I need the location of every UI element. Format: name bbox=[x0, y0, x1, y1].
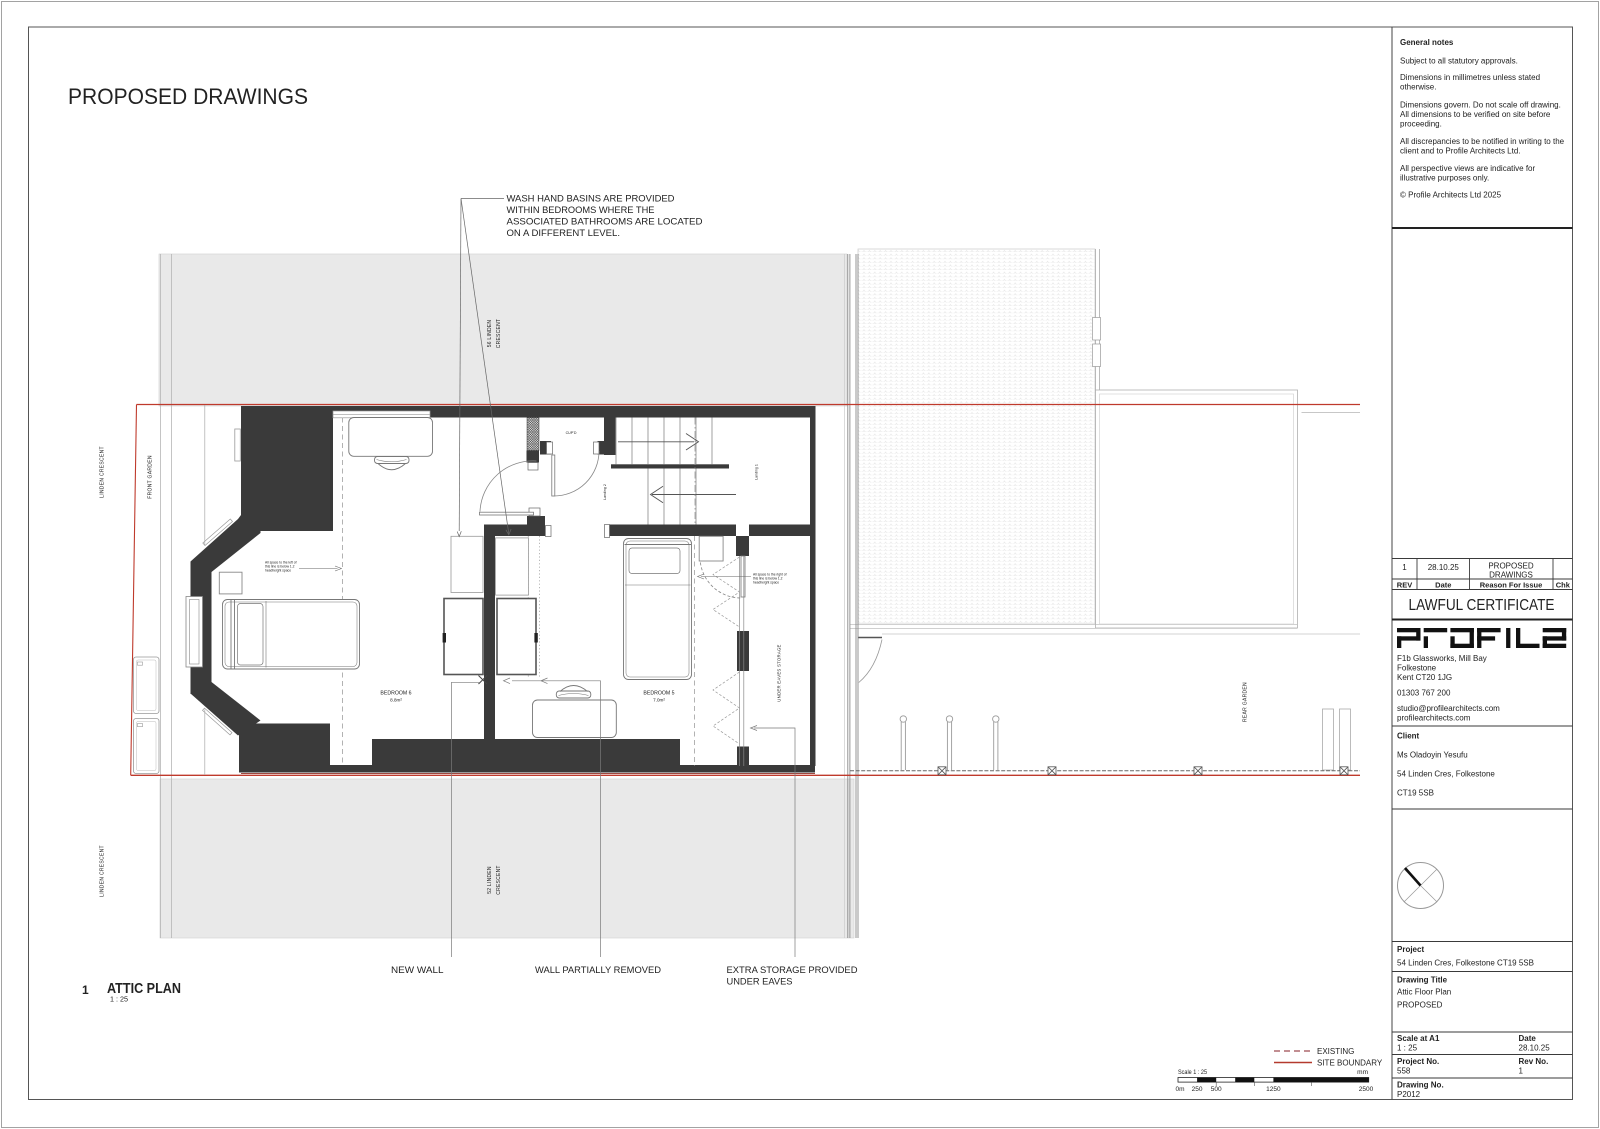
svg-text:Reason For Issue: Reason For Issue bbox=[1480, 581, 1543, 590]
svg-text:LINDEN CRESCENT: LINDEN CRESCENT bbox=[100, 845, 106, 897]
svg-text:studio@profilearchitects.com: studio@profilearchitects.com bbox=[1397, 704, 1500, 713]
svg-text:Landing 2: Landing 2 bbox=[603, 484, 607, 500]
svg-text:1 : 25: 1 : 25 bbox=[1397, 1044, 1418, 1053]
svg-text:headheight space: headheight space bbox=[265, 569, 291, 573]
svg-text:Date: Date bbox=[1435, 581, 1451, 590]
svg-text:DRAWINGS: DRAWINGS bbox=[1489, 571, 1533, 580]
svg-text:Project No.: Project No. bbox=[1397, 1057, 1439, 1066]
svg-text:WITHIN BEDROOMS WHERE THE: WITHIN BEDROOMS WHERE THE bbox=[507, 205, 655, 215]
svg-text:REV: REV bbox=[1397, 581, 1412, 590]
svg-text:WALL PARTIALLY REMOVED: WALL PARTIALLY REMOVED bbox=[535, 965, 662, 975]
svg-text:Kent CT20 1JG: Kent CT20 1JG bbox=[1397, 673, 1452, 682]
svg-text:1 : 25: 1 : 25 bbox=[110, 995, 128, 1004]
svg-text:illustrative purposes only.: illustrative purposes only. bbox=[1400, 174, 1489, 183]
svg-text:500: 500 bbox=[1211, 1086, 1222, 1093]
svg-text:Ms Oladoyin Yesufu: Ms Oladoyin Yesufu bbox=[1397, 751, 1468, 760]
svg-text:1: 1 bbox=[82, 983, 89, 997]
svg-text:Dimensions in millimetres unle: Dimensions in millimetres unless stated bbox=[1400, 73, 1540, 82]
svg-text:ON A DIFFERENT LEVEL.: ON A DIFFERENT LEVEL. bbox=[507, 228, 621, 238]
svg-text:UNDER EAVES STORAGE: UNDER EAVES STORAGE bbox=[777, 644, 782, 701]
svg-text:Project: Project bbox=[1397, 945, 1424, 954]
svg-text:profilearchitects.com: profilearchitects.com bbox=[1397, 714, 1471, 723]
svg-text:8.8m²: 8.8m² bbox=[390, 698, 402, 703]
svg-text:2500: 2500 bbox=[1359, 1086, 1374, 1093]
svg-text:Client: Client bbox=[1397, 732, 1420, 741]
svg-text:Subject to all statutory appro: Subject to all statutory approvals. bbox=[1400, 57, 1518, 66]
svg-text:7.0m²: 7.0m² bbox=[653, 698, 665, 703]
svg-text:ASSOCIATED BATHROOMS ARE LOCAT: ASSOCIATED BATHROOMS ARE LOCATED bbox=[507, 217, 704, 227]
svg-text:PROPOSED: PROPOSED bbox=[1488, 562, 1534, 571]
svg-text:All perspective views are indi: All perspective views are indicative for bbox=[1400, 164, 1536, 173]
svg-text:1250: 1250 bbox=[1266, 1086, 1281, 1093]
svg-text:UNDER EAVES: UNDER EAVES bbox=[727, 977, 793, 987]
svg-text:Scale 1 : 25: Scale 1 : 25 bbox=[1178, 1069, 1207, 1076]
svg-text:250: 250 bbox=[1192, 1086, 1203, 1093]
svg-text:proceeding.: proceeding. bbox=[1400, 120, 1442, 129]
svg-text:EXTRA STORAGE PROVIDED: EXTRA STORAGE PROVIDED bbox=[727, 965, 859, 975]
svg-text:Folkestone: Folkestone bbox=[1397, 664, 1437, 673]
svg-text:General notes: General notes bbox=[1400, 38, 1454, 47]
svg-text:All discrepancies to be notifi: All discrepancies to be notified in writ… bbox=[1400, 137, 1565, 146]
svg-text:BEDROOM 5: BEDROOM 5 bbox=[643, 691, 674, 697]
svg-text:mm: mm bbox=[1357, 1069, 1368, 1076]
svg-text:Attic Floor Plan: Attic Floor Plan bbox=[1397, 988, 1451, 997]
svg-text:52 LINDEN: 52 LINDEN bbox=[487, 866, 493, 894]
svg-text:CT19 5SB: CT19 5SB bbox=[1397, 789, 1434, 798]
svg-text:NEW WALL: NEW WALL bbox=[391, 965, 444, 975]
svg-text:Drawing Title: Drawing Title bbox=[1397, 976, 1448, 985]
svg-text:Drawing No.: Drawing No. bbox=[1397, 1081, 1444, 1090]
svg-text:01303 767 200: 01303 767 200 bbox=[1397, 689, 1451, 698]
svg-text:client and to Profile Architec: client and to Profile Architects Ltd. bbox=[1400, 147, 1521, 156]
svg-text:CUP'D: CUP'D bbox=[566, 431, 577, 435]
svg-text:Date: Date bbox=[1519, 1034, 1537, 1043]
svg-text:headheight space: headheight space bbox=[753, 581, 779, 585]
svg-text:© Profile Architects Ltd 2025: © Profile Architects Ltd 2025 bbox=[1400, 191, 1502, 200]
svg-text:Dimensions govern. Do not scal: Dimensions govern. Do not scale off draw… bbox=[1400, 101, 1561, 110]
svg-text:otherwise.: otherwise. bbox=[1400, 83, 1436, 92]
svg-text:BEDROOM 6: BEDROOM 6 bbox=[380, 691, 411, 697]
svg-text:1: 1 bbox=[1519, 1067, 1524, 1076]
svg-text:Landing 1: Landing 1 bbox=[755, 464, 759, 480]
svg-text:All dimensions to be verified: All dimensions to be verified on site be… bbox=[1400, 110, 1551, 119]
svg-text:FRONT GARDEN: FRONT GARDEN bbox=[148, 455, 154, 499]
svg-text:558: 558 bbox=[1397, 1067, 1411, 1076]
svg-text:1: 1 bbox=[1402, 563, 1407, 572]
svg-text:54 Linden Cres, Folkestone CT1: 54 Linden Cres, Folkestone CT19 5SB bbox=[1397, 959, 1534, 968]
svg-text:28.10.25: 28.10.25 bbox=[1519, 1044, 1551, 1053]
svg-text:28.10.25: 28.10.25 bbox=[1428, 563, 1460, 572]
svg-text:0m: 0m bbox=[1175, 1086, 1184, 1093]
svg-text:P2012: P2012 bbox=[1397, 1090, 1421, 1099]
svg-text:Chk: Chk bbox=[1556, 581, 1571, 590]
svg-text:Scale at A1: Scale at A1 bbox=[1397, 1034, 1440, 1043]
svg-text:F1b Glassworks, Mill Bay: F1b Glassworks, Mill Bay bbox=[1397, 654, 1487, 663]
svg-text:PROPOSED DRAWINGS: PROPOSED DRAWINGS bbox=[68, 84, 308, 109]
svg-text:SITE BOUNDARY: SITE BOUNDARY bbox=[1317, 1059, 1383, 1068]
svg-text:WASH HAND BASINS ARE PROVIDED: WASH HAND BASINS ARE PROVIDED bbox=[507, 194, 676, 204]
svg-text:EXISTING: EXISTING bbox=[1317, 1047, 1354, 1056]
svg-text:CRESCENT: CRESCENT bbox=[496, 319, 502, 349]
svg-text:CRESCENT: CRESCENT bbox=[496, 865, 502, 895]
svg-text:LINDEN CRESCENT: LINDEN CRESCENT bbox=[100, 446, 106, 498]
svg-text:REAR GARDEN: REAR GARDEN bbox=[1243, 682, 1249, 722]
svg-text:56 LINDEN: 56 LINDEN bbox=[487, 320, 493, 348]
svg-text:LAWFUL CERTIFICATE: LAWFUL CERTIFICATE bbox=[1409, 597, 1555, 614]
svg-text:54 Linden Cres, Folkestone: 54 Linden Cres, Folkestone bbox=[1397, 770, 1495, 779]
svg-text:Rev No.: Rev No. bbox=[1519, 1057, 1549, 1066]
svg-text:PROPOSED: PROPOSED bbox=[1397, 1001, 1443, 1010]
